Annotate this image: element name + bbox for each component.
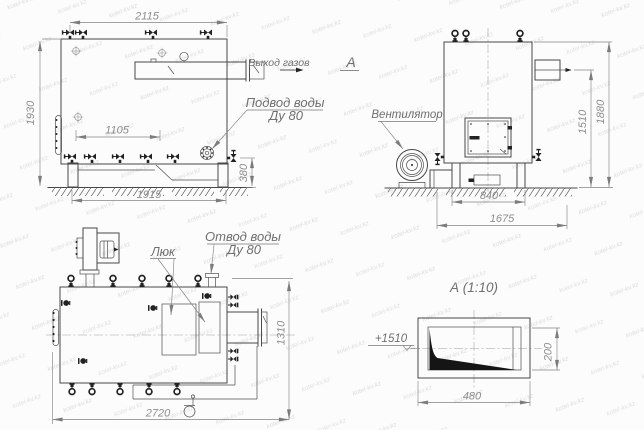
label-hatch: Люк — [150, 245, 176, 259]
dim-480: 480 — [463, 391, 482, 403]
dim-1310: 1310 — [276, 320, 288, 345]
dim-1930: 1930 — [25, 100, 37, 125]
technical-drawing-canvas: kotel-kv.kz kotel-kv.kz — [0, 0, 644, 430]
dim-1915: 1915 — [137, 189, 162, 201]
label-elevation: +1510 — [375, 333, 408, 345]
label-fan: Вентилятор — [371, 109, 443, 121]
dim-200: 200 — [543, 342, 555, 362]
dim-2115: 2115 — [134, 11, 160, 23]
dim-1510: 1510 — [577, 109, 589, 134]
dim-840: 840 — [480, 190, 499, 202]
dim-380: 380 — [238, 163, 250, 182]
ground-hatch — [220, 188, 248, 196]
watermark-layer — [0, 0, 644, 430]
dim-2720: 2720 — [145, 408, 171, 420]
ground-hatch — [388, 189, 438, 197]
label-section-a: А — [345, 54, 355, 70]
detail-title: А (1:10) — [449, 280, 498, 295]
ground-hatch — [52, 188, 104, 196]
door-hinge — [508, 126, 513, 130]
ground-hatch — [514, 189, 572, 197]
ground-hatch — [172, 188, 214, 196]
dim-1880: 1880 — [595, 99, 607, 124]
boiler-drawing: kotel-kv.kz kotel-kv.kz — [0, 0, 644, 430]
dim-1105: 1105 — [105, 125, 130, 137]
label-gas-outlet: Выход газов — [248, 57, 310, 69]
dim-1675: 1675 — [490, 213, 515, 225]
door-hinge — [508, 146, 513, 150]
